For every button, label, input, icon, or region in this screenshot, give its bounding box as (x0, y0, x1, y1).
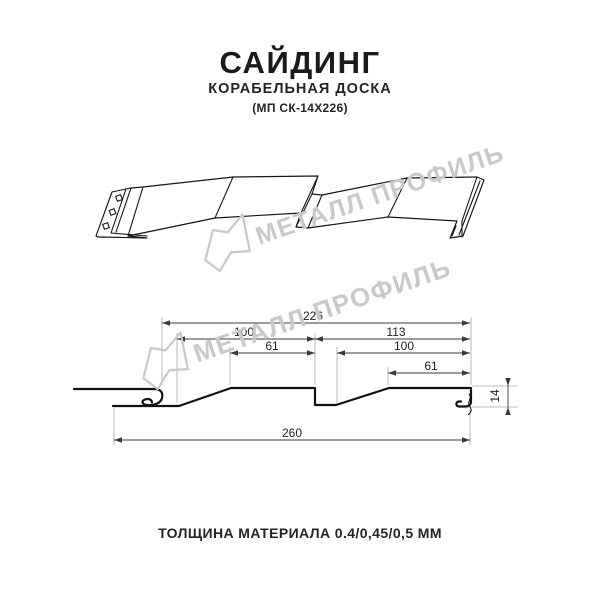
dim-label-100-right: 100 (394, 339, 414, 353)
product-drawing-card: САЙДИНГ КОРАБЕЛЬНАЯ ДОСКА (МП СК-14Х226) (0, 0, 600, 600)
profile-outline (74, 388, 471, 415)
dim-label-61-right: 61 (424, 359, 438, 373)
dim-label-260: 260 (282, 426, 302, 440)
metall-profil-logo-icon (133, 333, 195, 393)
dim-label-14: 14 (488, 389, 502, 403)
extension-lines (114, 317, 518, 445)
dim-label-113: 113 (386, 325, 405, 339)
thickness-note: ТОЛЩИНА МАТЕРИАЛА 0.4/0,45/0,5 ММ (0, 526, 600, 540)
watermark-bottom: МЕТАЛЛ ПРОФИЛЬ (133, 242, 457, 392)
watermark-brand-text: МЕТАЛЛ ПРОФИЛЬ (189, 252, 455, 369)
technical-drawing: 226 100 113 61 100 61 260 14 МЕТАЛЛ ПРОФ… (0, 0, 600, 600)
metall-profil-logo-icon (195, 215, 257, 275)
